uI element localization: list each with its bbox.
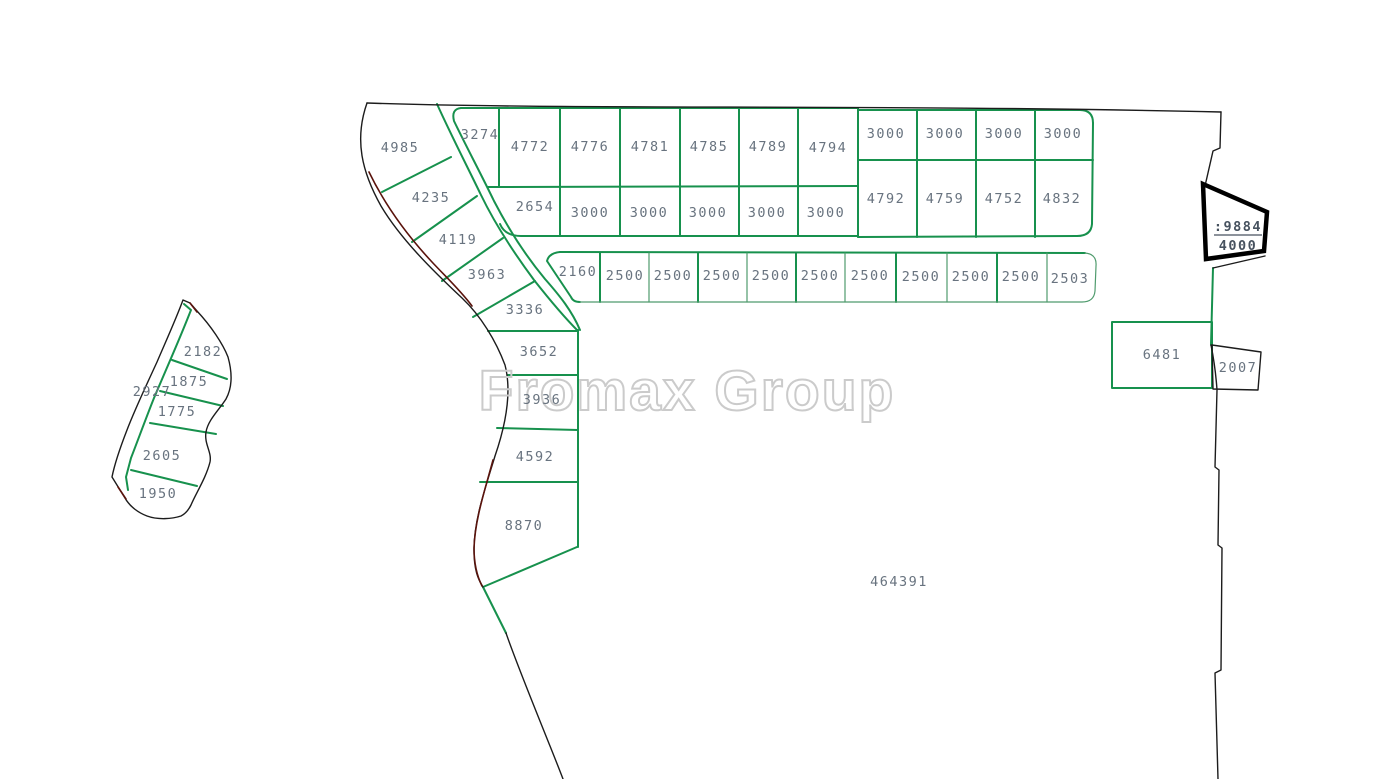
plot-area-label-northwest-column-3: 3963 — [468, 267, 507, 283]
south-boundary-green-segment — [483, 587, 506, 633]
plot-area-label-northeast-block-upper-0: 3000 — [867, 126, 906, 142]
plot-area-label-northeast-block-lower-2: 4752 — [985, 191, 1024, 207]
plot-area-label-northeast-block-upper-3: 3000 — [1044, 126, 1083, 142]
northeast-block-bottom-edge — [858, 236, 1077, 237]
plot-area-label-west-cluster-4: 2605 — [143, 448, 182, 464]
plot-area-label-east-west-strip-9: 2500 — [1002, 269, 1041, 285]
plot-8870-bottom-edge — [483, 547, 577, 587]
plot-area-label-road-strip-0: 3274 — [461, 127, 500, 143]
plot-area-label-mid-column-2: 4592 — [516, 449, 555, 465]
east-boundary-upper — [1205, 112, 1221, 186]
plot-area-label-north-row-upper-5: 4794 — [809, 140, 848, 156]
plot-area-label-east-parcels-1: 2007 — [1219, 360, 1258, 376]
plot-area-label-east-west-strip-4: 2500 — [752, 268, 791, 284]
east-boundary-lower — [1211, 345, 1222, 779]
plot-area-label-east-west-strip-6: 2500 — [851, 268, 890, 284]
plot-area-label-north-row-upper-0: 4772 — [511, 139, 550, 155]
plot-area-label-east-west-strip-5: 2500 — [801, 268, 840, 284]
plot-labels-layer: 2182187529271775260519504985423541193963… — [133, 126, 1258, 590]
plot-area-label-east-west-strip-8: 2500 — [952, 269, 991, 285]
west-boundary-curve — [361, 103, 508, 587]
plot-area-label-mid-column-0: 3652 — [520, 344, 559, 360]
plot-area-label-north-row-upper-4: 4789 — [749, 139, 788, 155]
plot-area-label-west-cluster-0: 2182 — [184, 344, 223, 360]
plot-area-label-northwest-column-4: 3336 — [506, 302, 545, 318]
plot-area-label-mid-column-3: 8870 — [505, 518, 544, 534]
strip-top-edge — [560, 252, 1085, 253]
cadastral-map-canvas: Fromax Group :9884 4000 2182187529271775… — [0, 0, 1375, 779]
cadastral-map-svg: Fromax Group :9884 4000 2182187529271775… — [0, 0, 1375, 779]
plot-area-label-west-cluster-2: 2927 — [133, 384, 172, 400]
watermark: Fromax Group — [479, 359, 896, 423]
plot-area-label-northwest-column-0: 4985 — [381, 140, 420, 156]
plot-area-label-north-row-lower-4: 3000 — [807, 205, 846, 221]
plot-area-label-mid-column-1: 3936 — [523, 392, 562, 408]
plot-area-label-northwest-column-2: 4119 — [439, 232, 478, 248]
plot-area-label-east-west-strip-2: 2500 — [654, 268, 693, 284]
plot-area-label-north-row-lower-1: 3000 — [630, 205, 669, 221]
plot-area-label-north-row-lower-0: 3000 — [571, 205, 610, 221]
plot-area-label-road-strip-1: 2654 — [516, 199, 555, 215]
plot-area-label-central-parcel-0: 464391 — [870, 574, 928, 590]
plot-area-label-east-parcels-0: 6481 — [1143, 347, 1182, 363]
plot-area-label-northwest-column-1: 4235 — [412, 190, 451, 206]
plot-area-label-east-west-strip-1: 2500 — [606, 268, 645, 284]
divider-3936-4592 — [497, 428, 578, 430]
plot-area-label-east-west-strip-0: 2160 — [559, 264, 598, 280]
west-boundary-accent-lower — [474, 460, 493, 586]
plot-area-label-east-west-strip-7: 2500 — [902, 269, 941, 285]
south-boundary-curve — [506, 633, 563, 779]
plot-area-label-northeast-block-upper-2: 3000 — [985, 126, 1024, 142]
plot-area-label-west-cluster-5: 1950 — [139, 486, 178, 502]
plot-area-label-west-cluster-3: 1775 — [158, 404, 197, 420]
divider-4985-4235 — [382, 157, 451, 192]
plot-area-label-northeast-block-lower-3: 4832 — [1043, 191, 1082, 207]
plot-area-label-northeast-block-upper-1: 3000 — [926, 126, 965, 142]
plot-area-label-north-row-upper-3: 4785 — [690, 139, 729, 155]
north-band-mid-edge — [488, 186, 858, 187]
highlight-plot-number: :9884 — [1214, 219, 1262, 235]
plot-area-label-north-row-lower-2: 3000 — [689, 205, 728, 221]
highlight-plot-group: :9884 4000 — [1203, 184, 1267, 259]
plot-area-label-east-west-strip-10: 2503 — [1051, 271, 1090, 287]
plot-area-label-northeast-block-lower-0: 4792 — [867, 191, 906, 207]
plot-area-label-north-row-lower-3: 3000 — [748, 205, 787, 221]
west-cluster-accent-bottom — [118, 487, 126, 499]
highlight-plot-area: 4000 — [1219, 238, 1258, 254]
plot-area-label-northeast-block-lower-1: 4759 — [926, 191, 965, 207]
plot-area-label-east-west-strip-3: 2500 — [703, 268, 742, 284]
divider-2605-1950 — [131, 470, 197, 486]
plot-area-label-north-row-upper-2: 4781 — [631, 139, 670, 155]
plot-area-label-north-row-upper-1: 4776 — [571, 139, 610, 155]
plot-area-label-west-cluster-1: 1875 — [170, 374, 209, 390]
